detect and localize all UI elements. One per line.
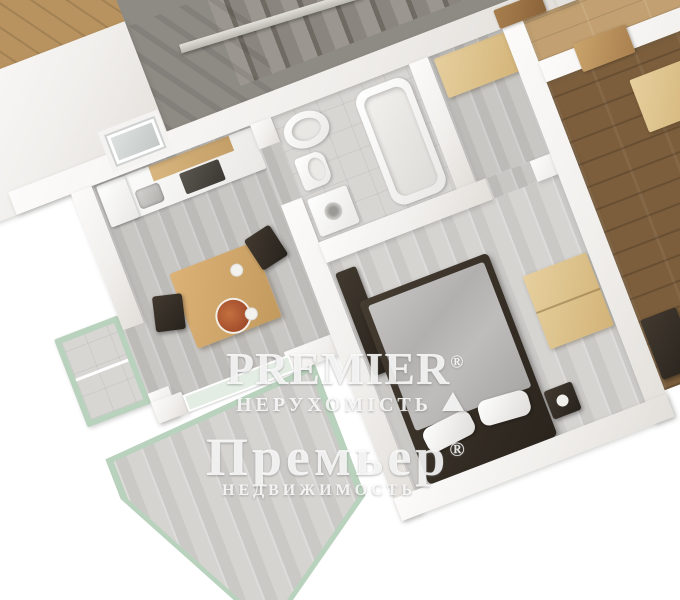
apartment-plan-rotated <box>0 0 680 600</box>
premier-logo-pyramid-icon <box>442 392 464 411</box>
toilet-seat <box>305 155 329 183</box>
watermark-premier-ua-subtitle: НЕРУХОМІСТЬ <box>236 392 464 417</box>
watermark-premier-ua: PREMIER® <box>226 342 464 395</box>
stairwell-window-glass <box>110 122 160 160</box>
registered-mark-ru-icon: ® <box>449 439 468 461</box>
nightstand-lamp <box>555 393 571 409</box>
watermark-ua-subtitle-text: НЕРУХОМІСТЬ <box>236 394 432 416</box>
wardrobe-door-split <box>536 288 600 314</box>
registered-mark-icon: ® <box>450 352 464 372</box>
table-plate-1 <box>228 262 245 279</box>
washing-machine-door <box>322 199 345 222</box>
watermark-premier-ru: Премьер® <box>206 426 469 488</box>
sink-bowl <box>288 114 324 145</box>
dining-chair-left <box>152 293 186 332</box>
watermark-ua-name: PREMIER <box>226 343 450 394</box>
watermark-ru-subtitle-text: НЕДВИЖИМОСТЬ <box>222 482 416 499</box>
watermark-ru-name: Премьер <box>206 427 449 487</box>
watermark-premier-ru-subtitle: НЕДВИЖИМОСТЬ <box>222 482 416 500</box>
floorplan-3d-render: PREMIER® НЕРУХОМІСТЬ Премьер® НЕДВИЖИМОС… <box>0 0 680 600</box>
